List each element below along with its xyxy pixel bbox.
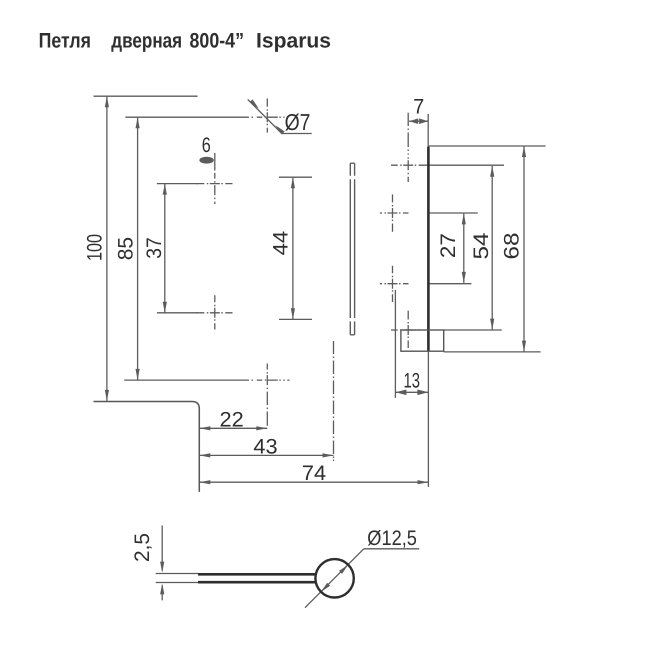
svg-text:74: 74 (302, 462, 327, 485)
svg-text:7: 7 (413, 96, 424, 119)
svg-text:6: 6 (202, 134, 211, 157)
svg-text:85: 85 (115, 237, 138, 260)
svg-text:Петля: Петля (39, 30, 91, 53)
svg-text:Isparus: Isparus (256, 30, 331, 53)
svg-text:27: 27 (437, 233, 460, 258)
svg-text:2,5: 2,5 (131, 533, 154, 562)
svg-text:13: 13 (404, 370, 421, 393)
svg-text:дверная: дверная (111, 30, 182, 53)
svg-text:37: 37 (143, 237, 166, 259)
svg-text:Ø7: Ø7 (285, 109, 311, 135)
svg-text:22: 22 (220, 408, 244, 431)
svg-text:100: 100 (84, 234, 107, 261)
svg-text:44: 44 (270, 230, 293, 255)
svg-text:Ø12,5: Ø12,5 (367, 527, 417, 550)
svg-text:800-4”: 800-4” (190, 30, 245, 53)
svg-text:43: 43 (253, 435, 277, 458)
svg-text:54: 54 (470, 232, 493, 259)
svg-text:68: 68 (500, 233, 523, 260)
